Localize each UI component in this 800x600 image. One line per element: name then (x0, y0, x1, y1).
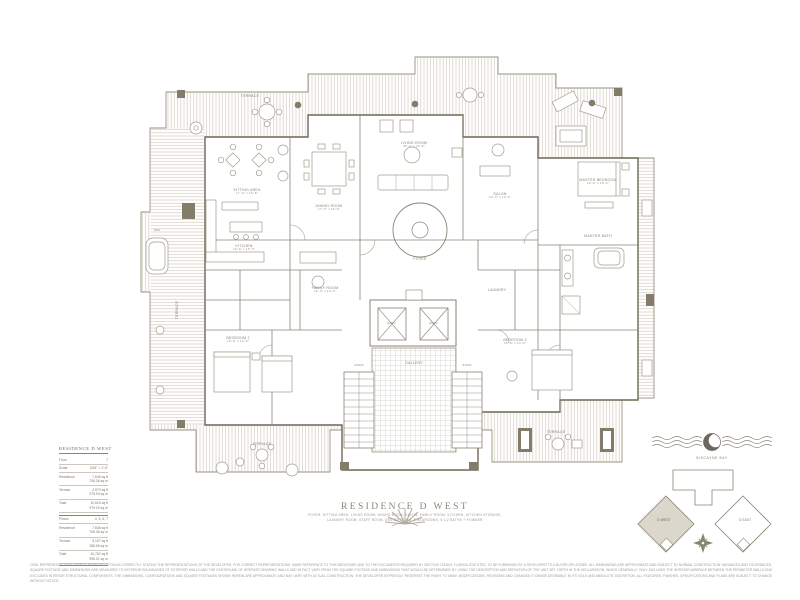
room-label-bed3: BEDROOM 315'-6" x 14'-0" (503, 338, 526, 346)
room-label-family: FAMILY ROOM16'-0" x 14'-6" (312, 286, 339, 294)
room-label-study: SALON14'-0" x 12'-6" (489, 192, 511, 200)
info-row: Floor7 (59, 456, 108, 465)
room-label-stair-1: STAIR (354, 364, 363, 368)
water-moon-emblem: BISCAYNE BAY (652, 434, 772, 461)
title-block: RESIDENCE D WEST FOYER, SITTING AREA, LI… (255, 500, 555, 523)
room-label-master: MASTER BEDROOM19'-0" x 16'-0" (579, 178, 616, 186)
room-label-kitchen: KITCHEN19'-6" x 15'-0" (233, 244, 255, 252)
key-plan: D WEST D EAST (638, 470, 771, 553)
info-row: Floors4, 5, 6, 7 (59, 515, 108, 525)
room-label-sitting: SITTING AREA17'-4" x 16'-8" (233, 188, 260, 196)
room-label-gallery: GALLERY (405, 361, 423, 365)
info-row: Total10,752 sq ft995.01 sq m (59, 551, 108, 564)
info-row: Residence7,645 sq ft706.36 sq m (59, 473, 108, 486)
features-line-2: LAUNDRY ROOM, STAFF ROOM, DESIGN ROOM, 5… (255, 518, 555, 523)
room-label-terrace-bl: TERRACE (253, 442, 272, 446)
info-row: Terrace3,107 sq ft288.65 sq m (59, 538, 108, 551)
info-row: Residence7,645 sq ft706.36 sq m (59, 524, 108, 537)
room-label-foyer: FOYER (413, 257, 426, 261)
stair-right (452, 372, 482, 448)
room-label-dining: DINING ROOM17'-0" x 16'-8" (316, 204, 343, 212)
room-label-terrace-top: TERRACE (241, 94, 260, 98)
compass-rose-icon (693, 533, 713, 553)
room-label-elev-2: ELEV. (430, 322, 439, 326)
room-label-stair-2: STAIR (462, 364, 471, 368)
info-row: Total10,615 sq ft979.29 sq m (59, 500, 108, 513)
key-plan-east-label: D EAST (739, 518, 751, 522)
room-label-terrace-left: TERRACE (175, 301, 179, 320)
key-plan-west-label: D WEST (657, 518, 670, 522)
info-row: Scale3/16" = 1'-0" (59, 465, 108, 474)
stair-left (344, 372, 374, 448)
page: { "colors":{"line":"#8b8374","wall":"#6e… (0, 0, 800, 600)
room-label-living: LIVING ROOM25'-4" x 22'-0" (401, 141, 427, 149)
room-label-masterbath: MASTER BATH (584, 234, 612, 238)
residence-title: RESIDENCE D WEST (255, 502, 555, 512)
legal-disclaimer: ORAL REPRESENTATIONS CANNOT BE RELIED UP… (30, 563, 772, 585)
room-label-spa: SPA (154, 229, 160, 233)
room-label-laundry: LAUNDRY (488, 288, 507, 292)
room-label-bed2: BEDROOM 216'-0" x 14'-0" (226, 336, 249, 344)
info-row: Terrace2,970 sq ft275.93 sq m (59, 486, 108, 499)
room-label-elev-1: ELEV. (388, 322, 397, 326)
info-panel-title: RESIDENCE D WEST (59, 446, 108, 454)
info-panel: RESIDENCE D WEST Floor7 Scale3/16" = 1'-… (59, 446, 108, 566)
room-label-terrace-br: TERRACE (547, 430, 566, 434)
emblem-caption: BISCAYNE BAY (696, 456, 728, 460)
